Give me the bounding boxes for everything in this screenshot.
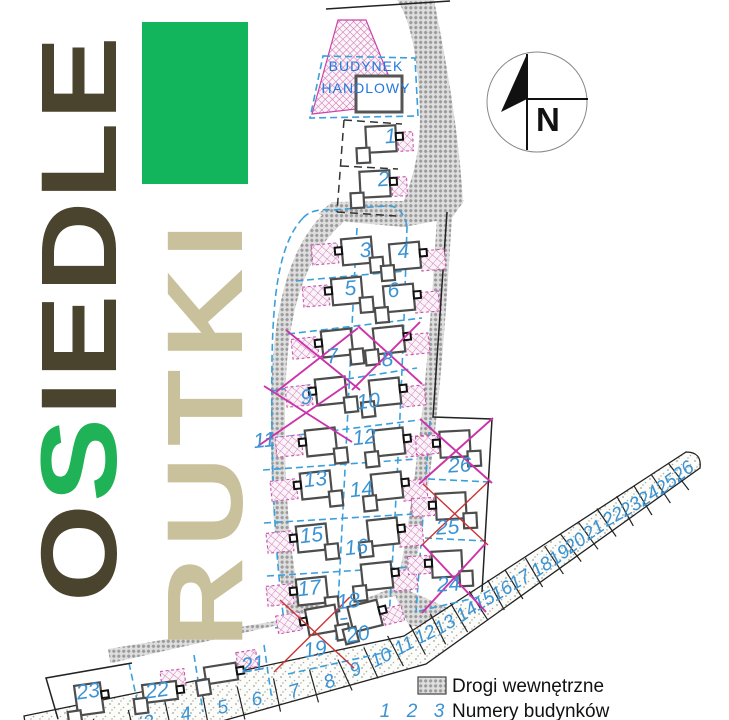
chimney: [429, 502, 436, 509]
chimney: [101, 690, 109, 698]
chimney: [335, 247, 343, 255]
commercial-building-label-line1: BUDYNEK: [329, 58, 404, 74]
plot-number: 4: [397, 240, 411, 264]
house-wing: [196, 679, 211, 696]
compass-north-label: N: [536, 101, 560, 138]
house-wing: [356, 148, 370, 164]
plot-number: 23: [74, 679, 102, 705]
chimney: [294, 481, 302, 489]
house-wing: [68, 710, 83, 720]
commercial-building-area: BUDYNEK HANDLOWY: [310, 20, 418, 118]
legend-numbers-label: Numery budynków: [452, 701, 610, 720]
plot-number: 3: [359, 239, 373, 263]
house-icon: [298, 426, 349, 467]
plot-number: 5: [344, 277, 358, 301]
legend: Drogi wewnętrzne 1 2 3 Numery budynków: [380, 676, 610, 720]
chimney: [391, 569, 399, 577]
chimney: [403, 435, 411, 443]
plot-number: 2: [376, 168, 391, 192]
plot-number: 19: [302, 637, 329, 663]
house-wing: [365, 349, 379, 365]
chimney: [176, 686, 184, 694]
plot-number: 18: [336, 589, 362, 614]
plot-number: 16: [344, 535, 370, 560]
house-wing: [334, 447, 348, 463]
legend-sample-number-2: 2: [406, 701, 418, 720]
house-wing: [459, 571, 473, 587]
chimney: [378, 606, 386, 614]
house-wing: [463, 513, 477, 529]
plot-number: 25: [434, 515, 460, 539]
plot-number: 6: [387, 279, 401, 303]
legend-sample-number-3: 3: [434, 701, 445, 720]
chimney: [419, 249, 427, 257]
plot-number: 21: [238, 651, 266, 678]
driveway-hatch: [276, 612, 303, 634]
chimney: [413, 291, 421, 299]
logo-osiedle-o: O: [18, 502, 139, 602]
chimney: [325, 287, 333, 295]
compass-needle-fill: [501, 54, 527, 112]
plot-number: 22: [143, 678, 171, 704]
plot-number: 12: [352, 425, 378, 450]
plot-number: 10: [356, 389, 382, 414]
chimney: [425, 560, 432, 567]
site-plan: BUDYNEK HANDLOWY 12345678910111213141516…: [0, 0, 729, 720]
plot-number: 15: [299, 523, 325, 548]
plot-number: 14: [349, 477, 375, 502]
chimney: [396, 133, 403, 140]
chimney: [399, 385, 407, 393]
site-plan-page: BUDYNEK HANDLOWY 12345678910111213141516…: [0, 0, 729, 720]
logo-osiedle-s-green: S: [18, 416, 139, 502]
house-icon: [314, 327, 365, 368]
legend-sample-number-1: 1: [380, 701, 391, 720]
compass-rose: N: [487, 52, 588, 152]
house-wing: [350, 348, 364, 364]
house-wing: [329, 490, 343, 506]
plot-number: 1: [384, 125, 397, 149]
house-wing: [325, 543, 339, 559]
logo-osiedle-iedle: IEDLE: [18, 34, 139, 416]
plot-number: 20: [343, 621, 371, 648]
plot-number: 24: [435, 572, 461, 596]
house-wing: [360, 297, 374, 313]
chimney: [315, 339, 323, 347]
plot-number: 26: [446, 453, 472, 477]
legend-roads-label: Drogi wewnętrzne: [452, 676, 604, 697]
chimney: [433, 440, 440, 447]
chimney: [299, 438, 307, 446]
legend-road-swatch: [418, 677, 446, 694]
chimney: [290, 587, 298, 595]
logo-word-osiedle: OSIEDLE: [18, 34, 139, 602]
plot-number: 13: [303, 467, 329, 492]
logo-green-square: [142, 22, 248, 184]
house-wing: [365, 451, 379, 467]
chimney: [397, 525, 405, 533]
logo-word-rutki: RUTKI: [144, 213, 265, 648]
logo: OSIEDLE RUTKI: [18, 22, 265, 648]
house-wing: [350, 193, 364, 209]
chimney: [290, 534, 298, 542]
house-wing: [375, 307, 389, 323]
plot-number: 17: [297, 576, 324, 601]
commercial-building-label-line2: HANDLOWY: [322, 80, 411, 96]
chimney: [401, 479, 409, 487]
chimney: [390, 178, 397, 185]
